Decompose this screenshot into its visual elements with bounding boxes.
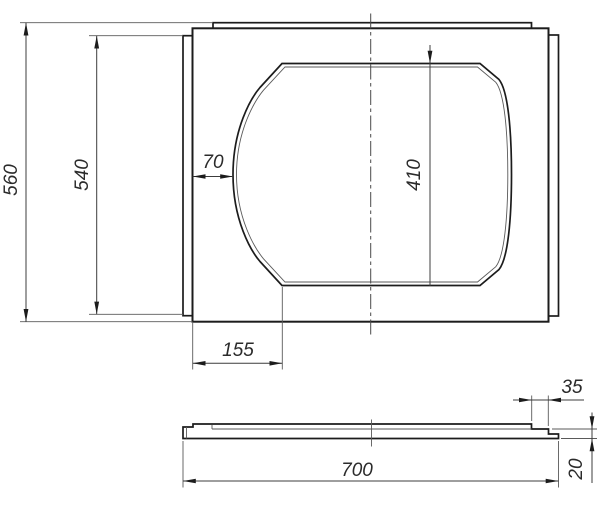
arrowhead	[193, 361, 206, 366]
dimension-700: 700	[183, 441, 559, 488]
arrowhead	[590, 439, 595, 452]
arrowhead	[546, 479, 559, 484]
arrowhead	[590, 416, 595, 429]
dimension-label-35: 35	[561, 377, 583, 398]
dimension-label-155: 155	[222, 340, 254, 361]
arrowhead	[94, 302, 99, 315]
front-view	[183, 14, 559, 335]
dimension-560: 560	[1, 23, 213, 322]
arrowhead	[24, 309, 29, 322]
arrowhead	[24, 23, 29, 36]
dimension-label-20: 20	[566, 458, 587, 481]
dimension-540: 540	[72, 36, 183, 315]
arrowhead	[183, 479, 196, 484]
dimension-label-540: 540	[72, 159, 93, 191]
drawing-sheet: 560 540 70 410 155	[0, 0, 600, 516]
side-view	[183, 420, 559, 447]
arrowhead	[519, 398, 532, 403]
dimension-35: 35	[513, 377, 584, 426]
right-tab-outline	[549, 35, 559, 316]
dimension-label-700: 700	[341, 460, 373, 481]
dimension-label-70: 70	[202, 152, 224, 173]
dimension-label-410: 410	[404, 159, 425, 191]
arrowhead	[94, 36, 99, 49]
profile-outline	[183, 424, 559, 439]
arrowhead	[548, 398, 561, 403]
technical-drawing: 560 540 70 410 155	[0, 0, 600, 516]
arrowhead	[270, 361, 283, 366]
dimension-label-560: 560	[1, 164, 22, 196]
